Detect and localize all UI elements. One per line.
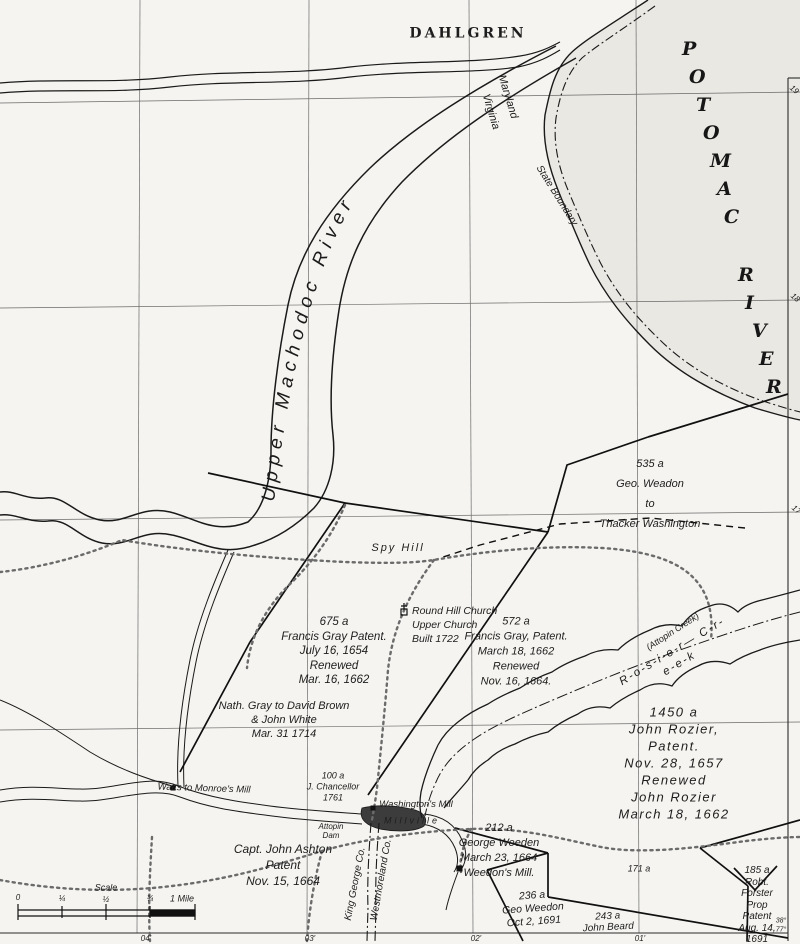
scale-tick-half: ½ xyxy=(103,895,110,905)
lon-tick-04: 04' xyxy=(141,934,151,944)
attopin-dam-label: Attopin Dam xyxy=(319,822,344,840)
scale-tick-0: 0 xyxy=(16,893,20,903)
parcel-beard-243-label: 243 a John Beard xyxy=(582,910,634,935)
parcel-nath-gray-label: Nath. Gray to David Brown & John White M… xyxy=(219,699,350,741)
parcel-rozier-1450-label: 1450 a John Rozier, Patent. Nov. 28, 165… xyxy=(611,704,737,823)
lon-tick-02: 02' xyxy=(471,934,481,944)
parcel-forster-185-label: 185 a Robt. Forster Prop Patent Aug. 14,… xyxy=(736,865,779,944)
parcel-weadon-535-label: 535 a Geo. Weadon to Thacker Washington xyxy=(600,454,701,534)
lon-tick-03: 03' xyxy=(305,934,315,944)
map-labels: DAHLGREN POTOMACRIVER Maryland Virginia … xyxy=(0,0,800,944)
parcel-171-label: 171 a xyxy=(628,863,651,874)
parcel-gray-572-label: 572 a Francis Gray, Patent. March 18, 16… xyxy=(464,615,567,690)
parcel-weedon-212-label: 212 a George Weeden March 23, 1664 Weedo… xyxy=(459,821,540,881)
virginia-label: Virginia xyxy=(478,93,502,132)
corner-lon-label: 77° xyxy=(776,927,787,936)
spy-hill-label: Spy Hill xyxy=(371,542,424,556)
state-boundary-label: State Boundary xyxy=(532,163,579,228)
lat-tick-17: 17 xyxy=(789,503,800,516)
parcel-ashton-label: Capt. John Ashton Patent Nov. 15, 1664 xyxy=(234,841,332,889)
lon-tick-01: 01' xyxy=(635,934,645,944)
westmoreland-co-label: Westmoreland Co. xyxy=(369,838,396,922)
watts-monroes-mill-label: Watts to Monroe's Mill xyxy=(157,781,250,796)
parcel-chancellor-100-label: 100 a J. Chancellor 1761 xyxy=(307,771,360,804)
parcel-weedon-236-label: 236 a Geo Weedon Oct 2, 1691 xyxy=(501,887,565,930)
king-george-co-label: King George Co. xyxy=(343,846,369,922)
scale-title: Scale xyxy=(95,882,118,893)
scale-tick-quarter: ¼ xyxy=(59,894,66,904)
scale-mile-label: 1 Mile xyxy=(170,893,194,904)
scale-tick-threequarter: ¾ xyxy=(147,894,154,904)
dahlgren-label: DAHLGREN xyxy=(409,25,526,43)
millville-label: Millville xyxy=(384,815,440,826)
parcel-gray-675-label: 675 a Francis Gray Patent. July 16, 1654… xyxy=(281,615,386,688)
historic-survey-map: Upper Machodoc River DAHLGREN POTOMACRIV… xyxy=(0,0,800,944)
lat-tick-18: 18 xyxy=(788,291,800,304)
corner-lat-label: 38° xyxy=(776,918,787,927)
washingtons-mill-label: Washington's Mill xyxy=(379,799,452,811)
lat-tick-19: 19 xyxy=(787,83,800,96)
